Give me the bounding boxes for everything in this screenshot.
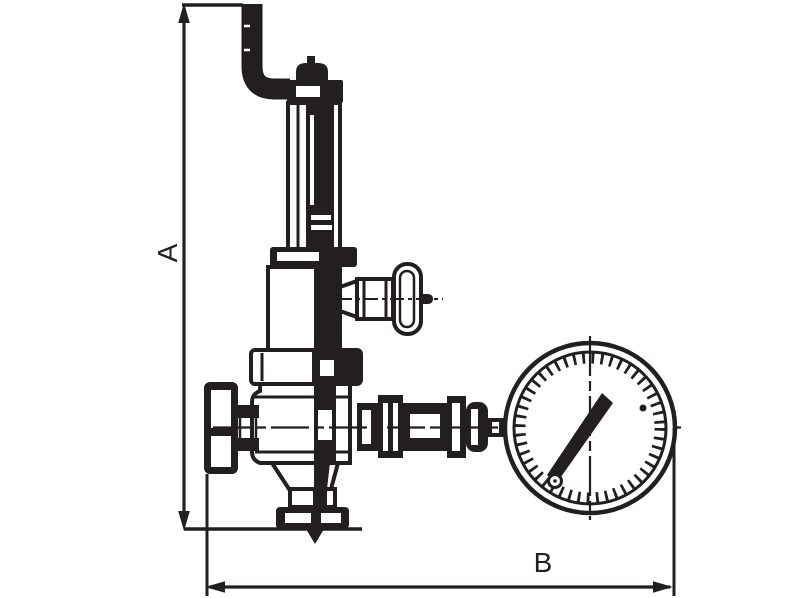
inlet-neck-bar bbox=[238, 438, 259, 451]
dimension-a-label: A bbox=[152, 243, 183, 262]
valve-technical-drawing: A B bbox=[0, 0, 800, 598]
inlet-neck-bar bbox=[238, 405, 259, 418]
union-nut-shaded bbox=[312, 352, 359, 382]
dimension-b-arrow-right bbox=[653, 581, 673, 593]
bonnet-stem-section bbox=[314, 267, 338, 350]
cap-plate-facet bbox=[296, 86, 320, 97]
housing-base-flange-facet bbox=[277, 252, 319, 261]
bonnet bbox=[268, 267, 340, 350]
drawing-canvas: A B bbox=[0, 0, 800, 598]
outlet-neck bbox=[290, 489, 335, 507]
spring-coil-mark bbox=[311, 215, 331, 220]
outlet-neck-shaded bbox=[313, 489, 327, 507]
outlet-flange-facet bbox=[285, 513, 311, 523]
gauge-dial-dot bbox=[640, 405, 647, 412]
exhaust-pipe bbox=[244, 4, 290, 89]
outlet-drain-point bbox=[306, 529, 324, 544]
spring-coil-mark bbox=[311, 225, 332, 230]
dimension-b-label: B bbox=[534, 547, 553, 578]
pressure-gauge bbox=[505, 336, 675, 520]
union-nut-facet bbox=[320, 360, 334, 376]
outlet-flange-facet bbox=[321, 513, 341, 523]
adjusting-screw-highlight bbox=[310, 115, 314, 205]
valve-body bbox=[251, 350, 361, 463]
inlet-cap-facet bbox=[211, 436, 231, 467]
exhaust-pipe-tube bbox=[252, 4, 290, 89]
bottom-outlet bbox=[272, 463, 349, 544]
side-tap-valve bbox=[338, 264, 443, 334]
inlet-cap-facet bbox=[211, 390, 231, 428]
drawing-root: A B bbox=[152, 3, 681, 596]
gauge-hub-dot bbox=[553, 479, 557, 483]
body-stem-window bbox=[318, 410, 332, 440]
cap-dome-nut bbox=[296, 63, 328, 82]
gauge-adapter-window bbox=[410, 414, 440, 438]
